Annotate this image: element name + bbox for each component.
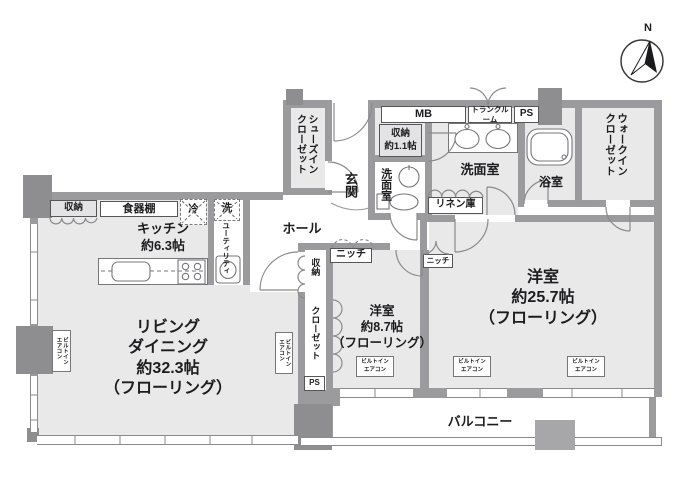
aircon-label: エアコン xyxy=(361,367,389,375)
balcony-equipment-block xyxy=(535,420,575,450)
door-gap-toilet xyxy=(390,213,417,220)
storage-1-1-box: 収納 約1.1帖 xyxy=(379,124,422,157)
compass-arrow-dark xyxy=(645,41,657,73)
ps-top-label: PS xyxy=(520,108,533,121)
linen-closet-box: リネン庫 xyxy=(428,197,483,214)
aircon-label: エアコン xyxy=(56,337,62,359)
ps-top-box: PS xyxy=(514,106,539,123)
bedroom-sub-size: 約8.7帖 xyxy=(328,319,436,335)
aircon-bedroom-main-right: ビルトインエアコン xyxy=(567,356,605,377)
entrance-label: 玄関 xyxy=(342,172,357,198)
strip-storage-label: 収納 xyxy=(310,258,320,276)
kitchen-size: 約6.3帖 xyxy=(108,238,218,255)
aircon-label: エアコン xyxy=(572,367,600,375)
kitchen-counter xyxy=(98,258,208,285)
column-top-mid xyxy=(538,88,562,125)
door-gap-washroom xyxy=(487,215,515,222)
living-name2: ダイニング xyxy=(88,338,248,358)
column-top-left xyxy=(23,175,52,218)
niche-bedroom-box: ニッチ xyxy=(423,254,453,268)
niche-hall-box: ニッチ xyxy=(330,248,372,263)
hall-label: ホール xyxy=(270,221,334,238)
bedroom-main-size: 約25.7帖 xyxy=(458,288,628,308)
window-living-bottom xyxy=(37,435,298,445)
compass-north-label: N xyxy=(641,21,655,35)
storage-1-1-line2: 約1.1帖 xyxy=(384,141,416,153)
wall-right xyxy=(654,103,662,397)
wall-balcony-right xyxy=(649,397,656,439)
compass xyxy=(621,40,663,82)
door-gap-bedroom-main xyxy=(455,215,488,222)
aircon-living-left: ビルトインエアコン xyxy=(52,330,71,372)
window-left-lower xyxy=(30,376,38,432)
bedroom-main-label: 洋室 約25.7帖 （フローリング） xyxy=(458,268,628,329)
wall-bathroom-right xyxy=(575,108,582,200)
kitchen-storage-label: 収納 xyxy=(64,202,83,214)
wic-line2: クローゼット xyxy=(604,113,616,176)
washer-box: 洗 xyxy=(214,199,240,221)
aircon-label: エアコン xyxy=(458,367,486,375)
washroom-counter xyxy=(448,123,518,153)
bedroom-main-name: 洋室 xyxy=(458,268,628,288)
door-gap-sic xyxy=(325,161,332,190)
wall-utility-right xyxy=(243,192,250,285)
utility-label: ユーティリティ xyxy=(221,222,230,275)
aircon-label: ビルトイン xyxy=(62,337,68,365)
balcony-rail xyxy=(300,437,662,446)
column-left-mid xyxy=(16,326,53,374)
balcony-label: バルコニー xyxy=(430,414,530,431)
fridge-label: 冷 xyxy=(188,204,199,216)
window-pier-1 xyxy=(413,388,447,398)
door-gap-wic xyxy=(606,200,630,207)
wall-top-right xyxy=(562,100,662,108)
kitchen-storage-box: 収納 xyxy=(50,200,97,217)
cupboard-box: 食器棚 xyxy=(100,201,178,217)
living-label: リビング ダイニング 約32.3帖 （フローリング） xyxy=(88,318,248,400)
storage-1-1-line1: 収納 xyxy=(384,128,416,140)
door-gap-bathroom xyxy=(524,200,548,207)
kitchen-name: キッチン xyxy=(108,221,218,238)
door-gap-hall-living xyxy=(298,252,305,292)
aircon-bedroom-sub: ビルトインエアコン xyxy=(356,356,394,377)
living-name: リビング xyxy=(88,318,248,338)
sic-line2: クローゼット xyxy=(295,114,306,174)
trunk-room-label: トランクルーム xyxy=(469,105,511,124)
bedroom-sub-name: 洋室 xyxy=(328,303,436,319)
sic-line1: シューズイン xyxy=(306,114,317,174)
window-pier-2 xyxy=(507,388,543,398)
column-porch xyxy=(286,89,303,105)
window-bedroom-bottom xyxy=(340,388,654,398)
mb-box: MB xyxy=(381,106,466,123)
wall-entrance-right xyxy=(368,108,375,220)
aircon-label: ビルトイン xyxy=(458,359,486,367)
mb-label: MB xyxy=(415,107,432,121)
niche-hall-label: ニッチ xyxy=(336,249,366,262)
aircon-label: ビルトイン xyxy=(284,339,290,367)
strip-closet-label: クローゼット xyxy=(310,306,320,360)
sic-label: シューズイン クローゼット xyxy=(294,114,317,186)
washroom-label: 洗面室 xyxy=(445,162,515,179)
aircon-bedroom-main-left: ビルトインエアコン xyxy=(453,356,491,377)
washer-label: 洗 xyxy=(222,203,233,215)
bathroom-label: 浴室 xyxy=(528,175,574,190)
bedroom-sub-label: 洋室 約8.7帖 （フローリング） xyxy=(328,303,436,351)
wall-porch-left xyxy=(283,100,291,195)
wall-bedroom-main-left-top xyxy=(420,215,427,253)
aircon-living-right: ビルトインエアコン xyxy=(275,332,293,374)
aircon-label: ビルトイン xyxy=(572,359,600,367)
trunk-room-box: トランクルーム xyxy=(468,106,512,123)
compass-arrow-light xyxy=(631,41,650,75)
aircon-label: ビルトイン xyxy=(361,359,389,367)
bedroom-sub-floor: （フローリング） xyxy=(328,335,436,351)
bedroom-main-floor: （フローリング） xyxy=(458,309,628,329)
linen-closet-label: リネン庫 xyxy=(436,199,476,212)
door-gap-bedroom-sub xyxy=(390,243,420,250)
floorplan: MB トランクルーム PS 収納 約1.1帖 収納 食器棚 冷 洗 リネン庫 ニ… xyxy=(0,0,690,485)
niche-bedroom-label: ニッチ xyxy=(427,256,450,266)
cupboard-label: 食器棚 xyxy=(123,202,156,216)
wic-line1: ウォークイン xyxy=(616,113,628,176)
window-left-upper xyxy=(30,224,38,324)
wic-label: ウォークイン クローゼット xyxy=(604,113,628,191)
living-floor: （フローリング） xyxy=(88,379,248,399)
room-hall-a xyxy=(250,200,305,292)
toilet-label: 洗面室 xyxy=(379,168,392,201)
aircon-label: エアコン xyxy=(278,339,284,361)
living-size: 約32.3帖 xyxy=(88,359,248,379)
compass-circle xyxy=(621,40,663,82)
ps-side-box: PS xyxy=(304,376,325,391)
kitchen-label: キッチン 約6.3帖 xyxy=(108,221,218,254)
ps-side-label: PS xyxy=(309,378,320,388)
